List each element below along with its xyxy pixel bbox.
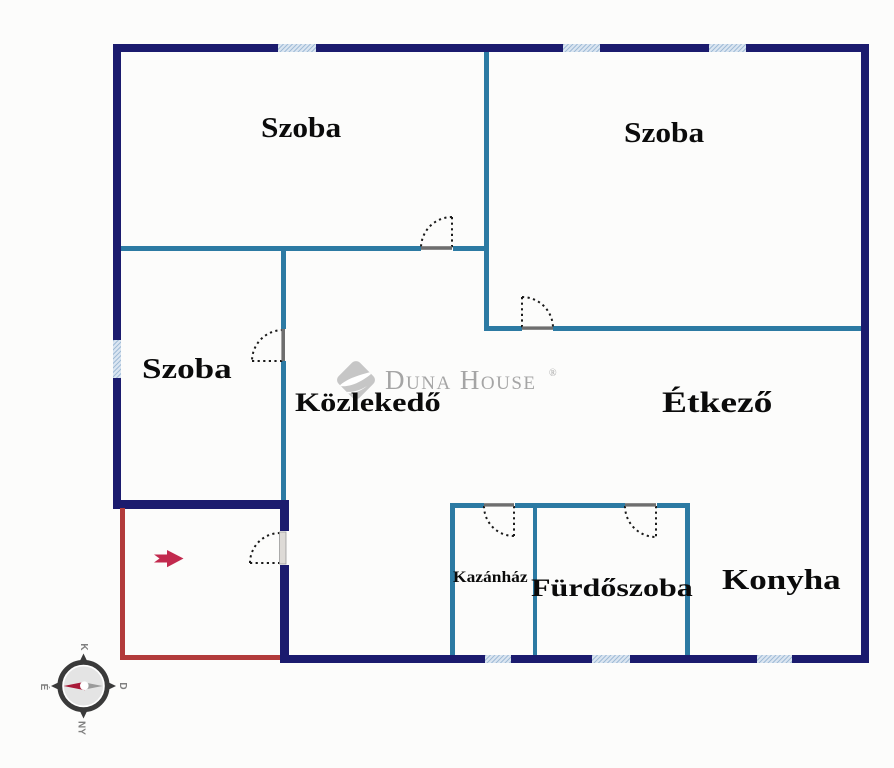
svg-text:D: D [117,682,128,689]
svg-text:NY: NY [76,721,87,735]
svg-text:K: K [78,643,89,651]
svg-text:É: É [38,684,51,691]
